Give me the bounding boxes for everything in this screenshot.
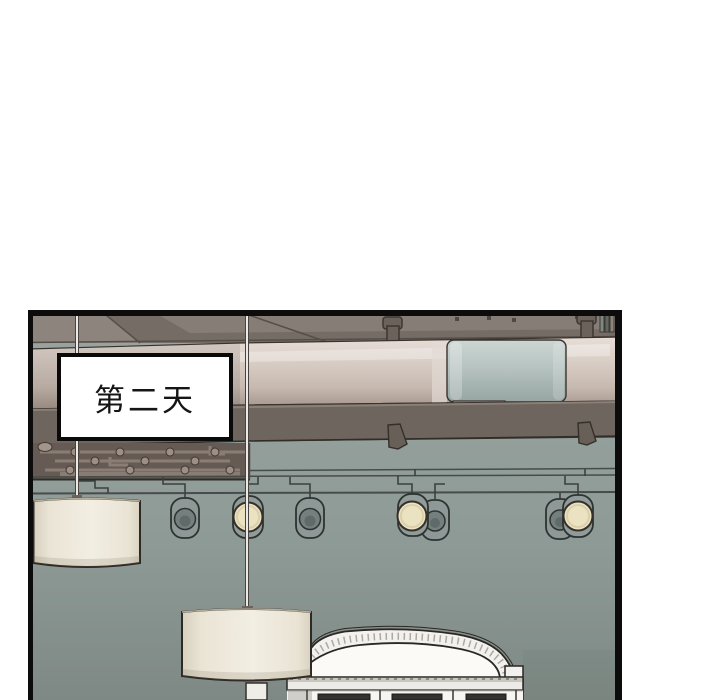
pipe-recess	[33, 443, 250, 481]
cabinet-post	[246, 683, 267, 700]
spotlight-lit-3	[563, 495, 593, 537]
pipe-sleeve	[447, 340, 566, 411]
cabinet-doors	[287, 690, 523, 700]
spotlight-lit-2	[398, 494, 429, 536]
caption-box: 第二天	[57, 353, 233, 441]
spotlight-unlit-1	[171, 498, 199, 538]
comic-page: 第二天	[0, 0, 720, 700]
pendant-lamp-left	[34, 499, 141, 568]
pendant-lamp-center	[182, 609, 311, 681]
cabinet-wall-shadow	[523, 650, 615, 700]
caption-text: 第二天	[94, 375, 196, 420]
spotlight-unlit-2	[296, 498, 324, 538]
